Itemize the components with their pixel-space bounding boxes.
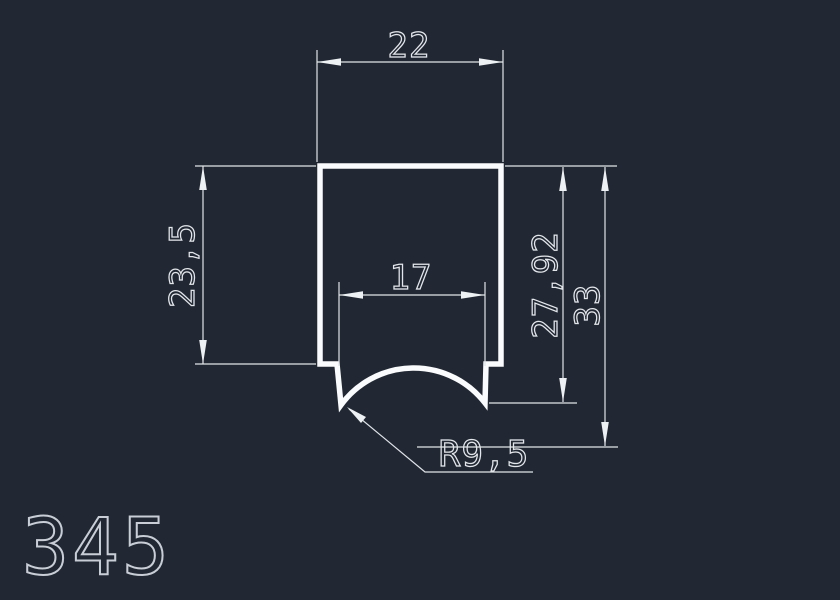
dimension-label: 17: [390, 258, 433, 298]
cad-canvas: 22 23,5 17 27,92 33 R9,5: [0, 0, 840, 600]
drawing-number: 345: [22, 503, 172, 593]
radius-label: R9,5: [439, 434, 530, 475]
dimension-label: 33: [568, 284, 608, 327]
dimension-label: 23,5: [163, 222, 203, 308]
dimension-label: 27,92: [526, 231, 566, 338]
dimension-label: 22: [388, 26, 431, 66]
